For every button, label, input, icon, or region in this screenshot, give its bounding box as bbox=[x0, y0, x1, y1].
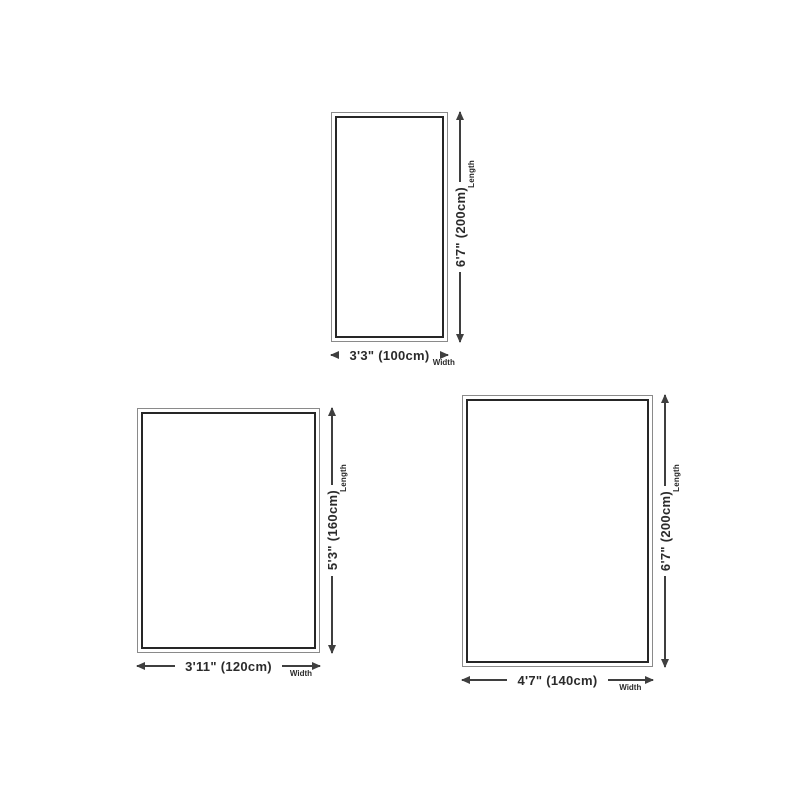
size-diagram-120x160: Length 5'3" (160cm) 3'11" (120cm) Width bbox=[137, 408, 320, 653]
rug-outline-inner bbox=[335, 116, 444, 338]
width-dimension: 3'3" (100cm) Width bbox=[331, 348, 448, 362]
width-dimension: 3'11" (120cm) Width bbox=[137, 659, 320, 673]
length-dimension: Length 5'3" (160cm) bbox=[325, 408, 339, 653]
length-dimension: Length 6'7" (200cm) bbox=[658, 395, 672, 667]
width-arrow-right-icon: Width bbox=[282, 665, 320, 667]
rug-outline-outer bbox=[462, 395, 653, 667]
width-axis-label: Width bbox=[433, 359, 455, 367]
length-arrow-down-icon bbox=[664, 576, 666, 667]
length-arrow-up-icon: Length bbox=[331, 408, 333, 485]
width-arrow-left-icon bbox=[137, 665, 175, 667]
rug-outline-inner bbox=[141, 412, 316, 649]
rug-outline-outer bbox=[331, 112, 448, 342]
length-value: 6'7" (200cm) bbox=[659, 491, 672, 571]
length-arrow-down-icon bbox=[331, 576, 333, 653]
size-chart-canvas: Length 6'7" (200cm) 3'3" (100cm) Width L… bbox=[0, 0, 800, 800]
width-arrow-left-icon bbox=[462, 679, 507, 681]
size-diagram-100x200: Length 6'7" (200cm) 3'3" (100cm) Width bbox=[331, 112, 448, 342]
length-arrow-down-icon bbox=[459, 272, 461, 342]
width-dimension: 4'7" (140cm) Width bbox=[462, 673, 653, 687]
length-value: 6'7" (200cm) bbox=[454, 187, 467, 267]
size-diagram-140x200: Length 6'7" (200cm) 4'7" (140cm) Width bbox=[462, 395, 653, 667]
length-arrow-up-icon: Length bbox=[459, 112, 461, 182]
length-arrow-up-icon: Length bbox=[664, 395, 666, 486]
length-axis-label: Length bbox=[468, 160, 476, 188]
width-axis-label: Width bbox=[290, 670, 312, 678]
width-value: 3'3" (100cm) bbox=[349, 349, 429, 362]
width-value: 4'7" (140cm) bbox=[517, 674, 597, 687]
length-axis-label: Length bbox=[673, 464, 681, 492]
width-axis-label: Width bbox=[619, 684, 641, 692]
length-value: 5'3" (160cm) bbox=[326, 490, 339, 570]
width-arrow-left-icon bbox=[331, 354, 339, 356]
rug-outline-inner bbox=[466, 399, 649, 663]
width-arrow-right-icon: Width bbox=[440, 354, 448, 356]
width-value: 3'11" (120cm) bbox=[185, 660, 272, 673]
width-arrow-right-icon: Width bbox=[608, 679, 653, 681]
rug-outline-outer bbox=[137, 408, 320, 653]
length-dimension: Length 6'7" (200cm) bbox=[453, 112, 467, 342]
length-axis-label: Length bbox=[340, 464, 348, 492]
